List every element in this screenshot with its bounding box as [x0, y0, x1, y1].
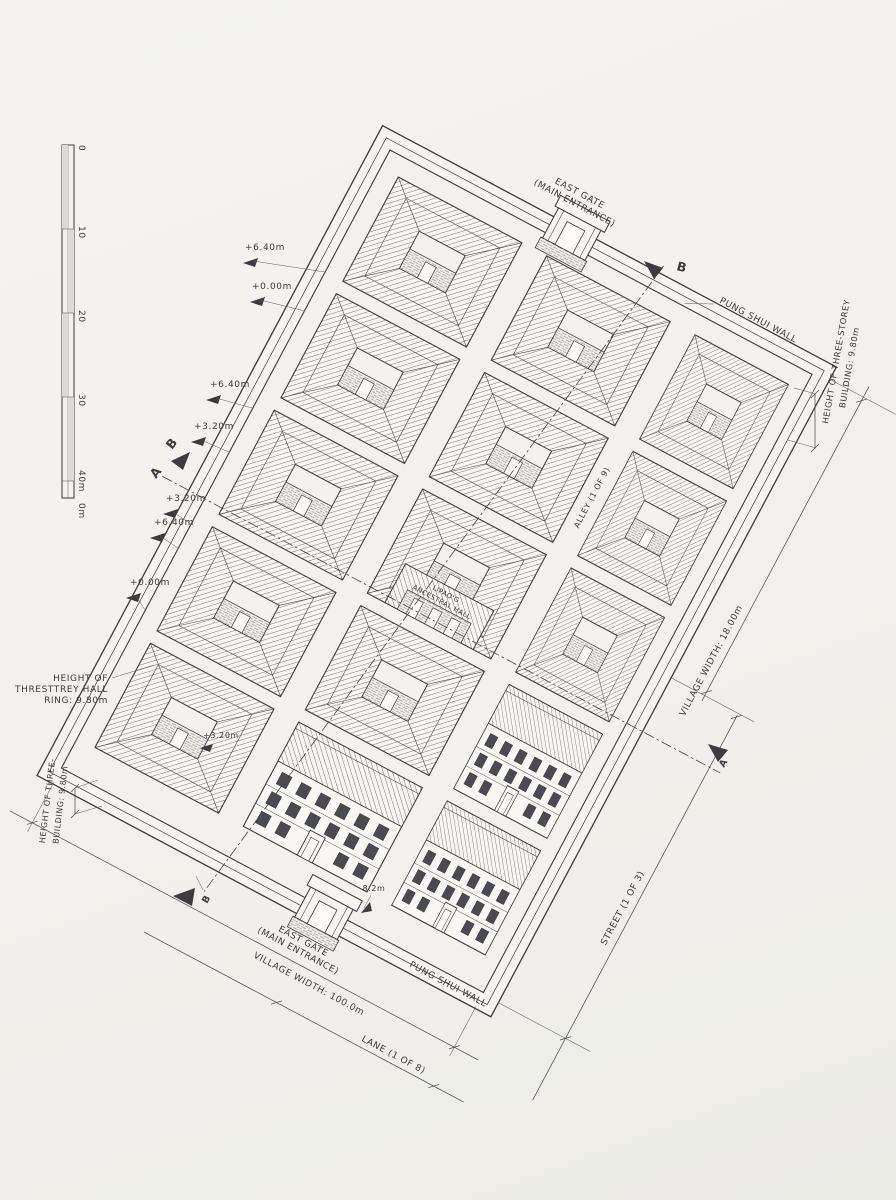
elevation-label: +0.00m: [252, 282, 292, 292]
elevation-label: +6.40m: [245, 243, 285, 253]
village-plan: LIPAO'G ANCESTRAL HALL EAST GATE (MAIN E…: [0, 79, 896, 1147]
section-letter-b-top: B: [675, 258, 688, 275]
scale-tick-0: 0: [76, 145, 86, 151]
section-letter-b-bottom: B: [200, 893, 213, 905]
scale-bar: 0 10 20 30 40m 0m: [62, 145, 86, 519]
street-label: STREET (1 OF 3): [599, 869, 647, 947]
hall-height-line3: RING: 9.80m: [44, 696, 108, 706]
section-letter-a-right: A: [717, 757, 731, 769]
scale-tick-30: 30: [76, 394, 86, 407]
gate-width-label: 8.2m: [363, 884, 386, 893]
elevation-label: +3.20m: [194, 422, 234, 432]
elevation-label: +3.20m: [166, 494, 206, 504]
hall-height-line2: THRESTTREY HALL: [14, 685, 108, 695]
village-axonometric-drawing: 0 10 20 30 40m 0m: [0, 0, 896, 1200]
hall-height-line1: HEIGHT OF: [53, 674, 108, 684]
scale-origin-label: 0m: [76, 503, 86, 519]
elevation-label: +6.40m: [210, 380, 250, 390]
section-arrow-left: [171, 452, 190, 470]
scale-tick-40: 40m: [76, 470, 86, 492]
scale-tick-20: 20: [76, 310, 86, 323]
section-letter-a-left: A: [147, 464, 165, 481]
elevation-label: +3.20m: [203, 731, 239, 740]
section-letter-b-left: B: [163, 435, 181, 452]
drawing-sheet: 0 10 20 30 40m 0m: [0, 0, 896, 1200]
scale-tick-10: 10: [76, 226, 86, 239]
elevation-label: +6.40m: [154, 518, 194, 528]
lane-label: LANE (1 OF 8): [360, 1034, 427, 1076]
elevation-label: +0.00m: [130, 578, 170, 588]
section-arrow-a-right: [708, 744, 728, 762]
